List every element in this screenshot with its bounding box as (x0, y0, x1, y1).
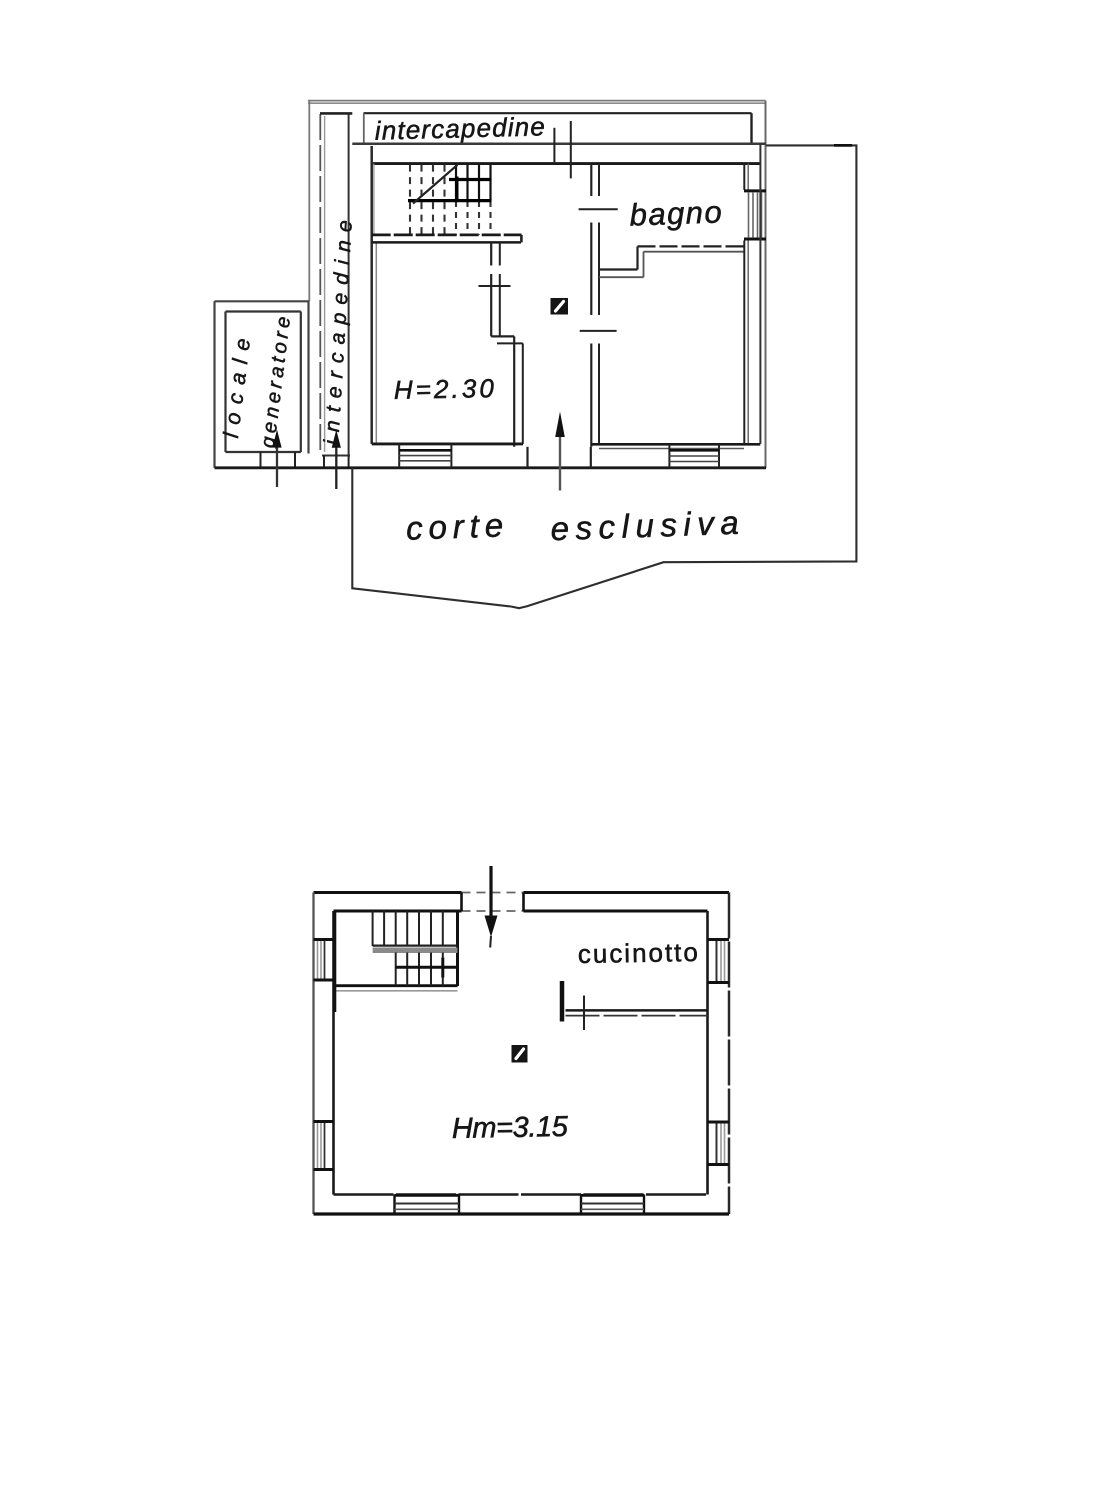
svg-text:H=2.30: H=2.30 (394, 373, 495, 405)
svg-text:bagno: bagno (629, 194, 722, 232)
svg-text:Hm=3.15: Hm=3.15 (452, 1111, 569, 1145)
svg-text:cucinotto: cucinotto (578, 937, 699, 969)
svg-text:corte: corte (405, 506, 503, 546)
svg-text:esclusiva: esclusiva (550, 504, 739, 548)
